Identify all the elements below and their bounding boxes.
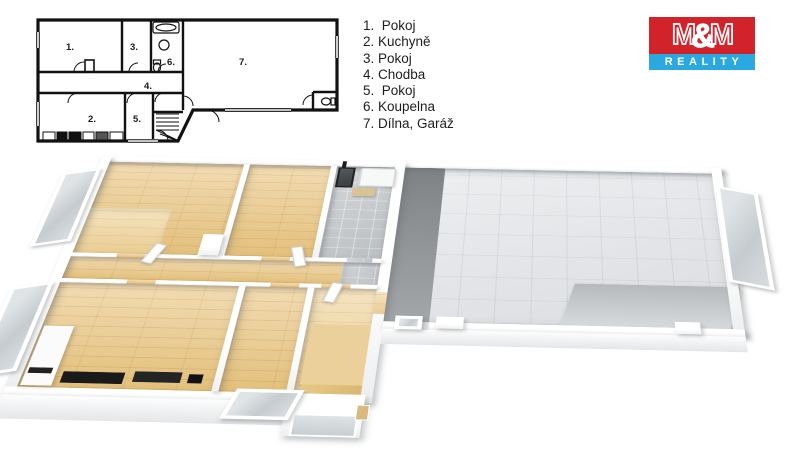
room-label-6: 6. xyxy=(167,57,175,68)
door-gap-room1 xyxy=(116,253,145,258)
building-3d xyxy=(0,156,761,439)
staircase xyxy=(298,324,371,395)
legend-item: 4. Chodba xyxy=(363,67,454,83)
windows-2d xyxy=(36,32,339,143)
room-label-4: 4. xyxy=(144,81,152,92)
logo-ampersand: & xyxy=(691,19,713,52)
room-legend: 1. Pokoj 2. Kuchyně 3. Pokoj 4. Chodba 5… xyxy=(363,18,454,132)
legend-item: 3. Pokoj xyxy=(363,51,454,67)
garage-door-panel xyxy=(560,284,740,329)
logo-wordmark: M&M xyxy=(649,17,755,54)
door-gap-kitchen xyxy=(126,279,156,284)
garage-front-panel-1 xyxy=(435,316,464,329)
stairs-2d xyxy=(156,114,179,141)
door-gap-bath xyxy=(346,258,373,263)
floorplan-2d: 1. 2. 3. 4. 5. 6. 7. xyxy=(30,8,342,150)
kitchen-counter-2d xyxy=(43,132,123,140)
legend-item: 5. Pokoj xyxy=(363,83,454,99)
legend-item: 1. Pokoj xyxy=(363,18,454,34)
kitchen-appliance-2 xyxy=(132,371,183,383)
room-label-1: 1. xyxy=(66,42,74,53)
door-gap-room3 xyxy=(261,256,290,261)
room-label-3: 3. xyxy=(130,42,138,53)
bathtub xyxy=(358,168,397,187)
outer-walls xyxy=(38,20,337,141)
floorplan-3d xyxy=(10,150,790,450)
legend-item: 6. Koupelna xyxy=(363,99,454,115)
room-label-7: 7. xyxy=(239,57,247,68)
door-arcs xyxy=(68,62,313,141)
bay-side-window xyxy=(354,405,370,421)
shower-enclosure xyxy=(335,167,356,187)
entry-bay-glazing xyxy=(288,413,359,437)
page-canvas: { "legend": { "items": ["1. Pokoj", "2. … xyxy=(0,0,800,450)
room-label-5: 5. xyxy=(133,114,141,125)
stair-winders xyxy=(298,384,362,395)
kitchen-counter-slot xyxy=(27,367,53,373)
kitchen-appliance-1 xyxy=(60,371,126,384)
garage-front-panel-2 xyxy=(675,322,702,335)
legend-item: 7. Dílna, Garáž xyxy=(363,116,454,132)
garage-front-window xyxy=(394,316,423,330)
logo-tagline: REALITY xyxy=(649,54,755,70)
kitchen-appliance-3 xyxy=(187,374,204,383)
legend-item: 2. Kuchyně xyxy=(363,34,454,50)
mm-reality-logo: M&M REALITY xyxy=(649,17,755,70)
shower-glass xyxy=(337,169,354,187)
logo-letter-m2: M xyxy=(710,21,732,50)
bath-vanity xyxy=(352,188,376,197)
door-gap-room5 xyxy=(270,283,300,288)
room-label-2: 2. xyxy=(88,114,96,125)
